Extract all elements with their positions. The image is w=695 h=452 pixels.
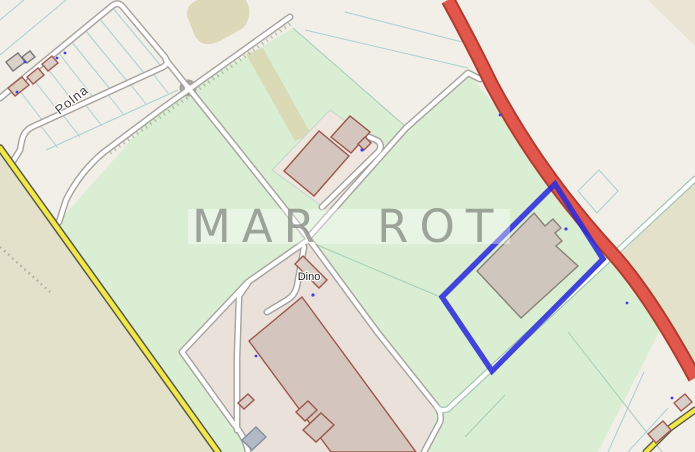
- watermark: MAR ROT: [188, 200, 510, 253]
- watermark-text: MAR ROT: [192, 200, 504, 253]
- map-viewport[interactable]: Polna Dino MAR ROT: [0, 0, 695, 452]
- map-canvas[interactable]: Polna Dino MAR ROT: [0, 0, 695, 452]
- poi-label-dino: Dino: [298, 271, 321, 283]
